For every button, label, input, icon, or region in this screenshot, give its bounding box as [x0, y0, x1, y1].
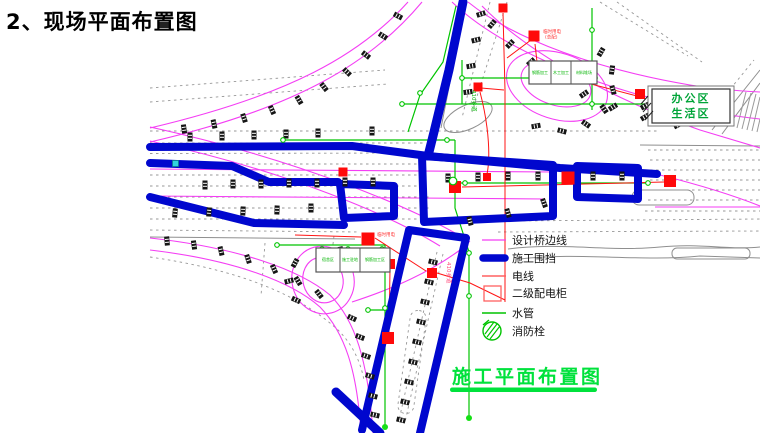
station-marker-icon: [591, 172, 596, 181]
station-marker-icon: [274, 205, 279, 214]
cell-label: 钢筋加工区: [365, 256, 385, 262]
svg-text:施工围挡: 施工围挡: [512, 251, 556, 265]
legend-item-hydrant: 消防栓: [483, 320, 545, 340]
camp-box-middle: 宿舍区 施工驻地 钢筋加工区: [316, 248, 390, 272]
cell-label: 施工驻地: [342, 256, 358, 262]
station-marker-icon: [287, 179, 292, 188]
station-marker-icon: [343, 178, 348, 187]
svg-text:设计桥边线: 设计桥边线: [512, 233, 567, 247]
station-marker-icon: [599, 104, 608, 114]
pipe-endpoint-icon: [382, 424, 388, 430]
distribution-cabinet-icon: [427, 268, 437, 278]
distribution-cabinet-icon: [382, 332, 394, 344]
legend-item-wire: 电线: [482, 269, 534, 283]
distribution-cabinet-icon: [339, 168, 348, 177]
distribution-cabinet-icon: [499, 4, 508, 13]
station-marker-icon: [428, 258, 438, 265]
pipe-node-icon: [646, 181, 651, 186]
station-marker-icon: [188, 133, 193, 142]
svg-text:水管: 水管: [512, 306, 534, 320]
pipe-node-icon: [445, 138, 450, 143]
station-marker-icon: [294, 276, 303, 286]
legend-item-bridge-edge: 设计桥边线: [482, 233, 567, 247]
station-marker-icon: [400, 398, 410, 405]
pipe-node-icon: [590, 102, 595, 107]
fire-hydrant-icon: [483, 320, 501, 340]
station-marker-icon: [370, 127, 375, 136]
station-marker-icon: [505, 39, 515, 49]
station-marker-icon: [203, 181, 208, 190]
station-marker-icon: [416, 318, 426, 325]
distribution-cabinet-icon: [483, 173, 491, 181]
station-marker-icon: [342, 67, 352, 77]
station-marker-icon: [424, 278, 434, 285]
drawing-caption: 施工平面布置图: [450, 365, 603, 392]
distribution-cabinet-icon: [529, 31, 540, 42]
station-marker-icon: [252, 131, 257, 140]
station-marker-icon: [268, 105, 276, 115]
pipe-node-icon: [418, 91, 423, 96]
pipe-node-icon: [400, 102, 405, 107]
office-area-label: 办公区: [672, 91, 711, 105]
cell-label: 钢筋加工: [532, 69, 548, 75]
station-marker-icon: [191, 240, 197, 250]
distribution-cabinet-icon: [562, 172, 575, 185]
legend: 设计桥边线 施工围挡 电线 二级配电柜 水管: [482, 233, 567, 340]
station-marker-icon: [420, 298, 430, 305]
pipe-node-icon: [467, 251, 472, 256]
cell-label: 材料堆场: [576, 69, 592, 75]
station-marker-icon: [316, 129, 321, 138]
station-marker-icon: [309, 204, 314, 213]
pipe-node-icon: [467, 294, 472, 299]
station-marker-icon: [231, 180, 236, 189]
station-marker-icon: [396, 416, 406, 423]
pipe-node-icon: [383, 306, 388, 311]
station-marker-icon: [408, 358, 418, 365]
fire-hydrant-node-icon: [449, 177, 457, 185]
station-marker-icon: [620, 172, 625, 181]
station-marker-icon: [609, 85, 616, 95]
station-marker-icon: [218, 246, 225, 256]
pipe-node-icon: [460, 76, 465, 81]
station-marker-icon: [540, 198, 548, 208]
station-marker-icon: [506, 172, 511, 181]
station-marker-icon: [531, 123, 541, 129]
station-marker-icon: [164, 236, 170, 245]
svg-text:二级配电柜: 二级配电柜: [512, 287, 567, 300]
station-marker-icon: [220, 132, 225, 141]
station-marker-icon: [295, 95, 304, 105]
distribution-cabinet-icon: [664, 175, 676, 187]
pipe-node-icon: [366, 308, 371, 313]
power-label-2: 临时用电: [377, 231, 395, 238]
pipe-node-icon: [275, 243, 280, 248]
station-marker-icon: [291, 296, 301, 304]
station-marker-icon: [536, 172, 541, 181]
pipe-endpoint-icon: [466, 415, 472, 421]
legend-item-fence: 施工围挡: [483, 251, 556, 265]
station-marker-icon: [581, 119, 591, 128]
distribution-cabinet-icon: [635, 89, 645, 99]
station-marker-icon: [284, 130, 289, 139]
power-label-1: 临时用电: [543, 28, 561, 35]
svg-text:电线: 电线: [512, 269, 534, 283]
station-marker-icon: [314, 289, 323, 299]
station-marker-icon: [597, 47, 606, 57]
station-marker-icon: [206, 207, 212, 216]
station-marker-icon: [471, 36, 481, 43]
living-area-label: 生活区: [672, 106, 711, 120]
township-road-label-red: 410乡道: [445, 262, 453, 284]
svg-text:消防栓: 消防栓: [512, 324, 545, 338]
station-marker-icon: [557, 127, 567, 134]
pipe-node-icon: [281, 138, 286, 143]
caption-underline: [450, 388, 597, 393]
township-road-label-green: 410乡道: [470, 90, 478, 112]
station-marker-icon: [315, 179, 320, 188]
distribution-cabinet-icon: [362, 233, 375, 246]
station-marker-icon: [172, 208, 178, 217]
utility-marker-icon: [173, 161, 179, 167]
site-plan-drawing: 钢筋加工 木工加工 材料堆场 宿舍区 施工驻地 钢筋加工区 办公区 生活区: [0, 0, 760, 433]
station-marker-icon: [412, 338, 422, 345]
station-marker-icon: [404, 378, 414, 385]
station-marker-icon: [181, 124, 187, 134]
cell-label: 宿舍区: [322, 256, 334, 262]
caption-text: 施工平面布置图: [452, 365, 603, 388]
power-label-1b: (总配): [545, 34, 558, 41]
pipe-node-icon: [463, 181, 468, 186]
station-marker-icon: [371, 178, 376, 187]
station-marker-icon: [378, 31, 388, 40]
site-plan-page: 2、现场平面布置图: [0, 0, 760, 433]
pipe-node-icon: [590, 28, 595, 33]
station-marker-icon: [609, 65, 615, 75]
legend-item-pipe: 水管: [482, 306, 534, 320]
workshop-box-top: 钢筋加工 木工加工 材料堆场: [529, 61, 597, 84]
station-marker-icon: [476, 173, 481, 182]
station-marker-icon: [579, 89, 589, 98]
station-marker-icon: [244, 254, 252, 264]
station-marker-icon: [240, 206, 245, 215]
station-marker-icon: [211, 119, 218, 129]
station-marker-icon: [259, 180, 264, 189]
cell-label: 木工加工: [553, 69, 569, 75]
legend-item-cabinet: 二级配电柜: [484, 286, 567, 301]
